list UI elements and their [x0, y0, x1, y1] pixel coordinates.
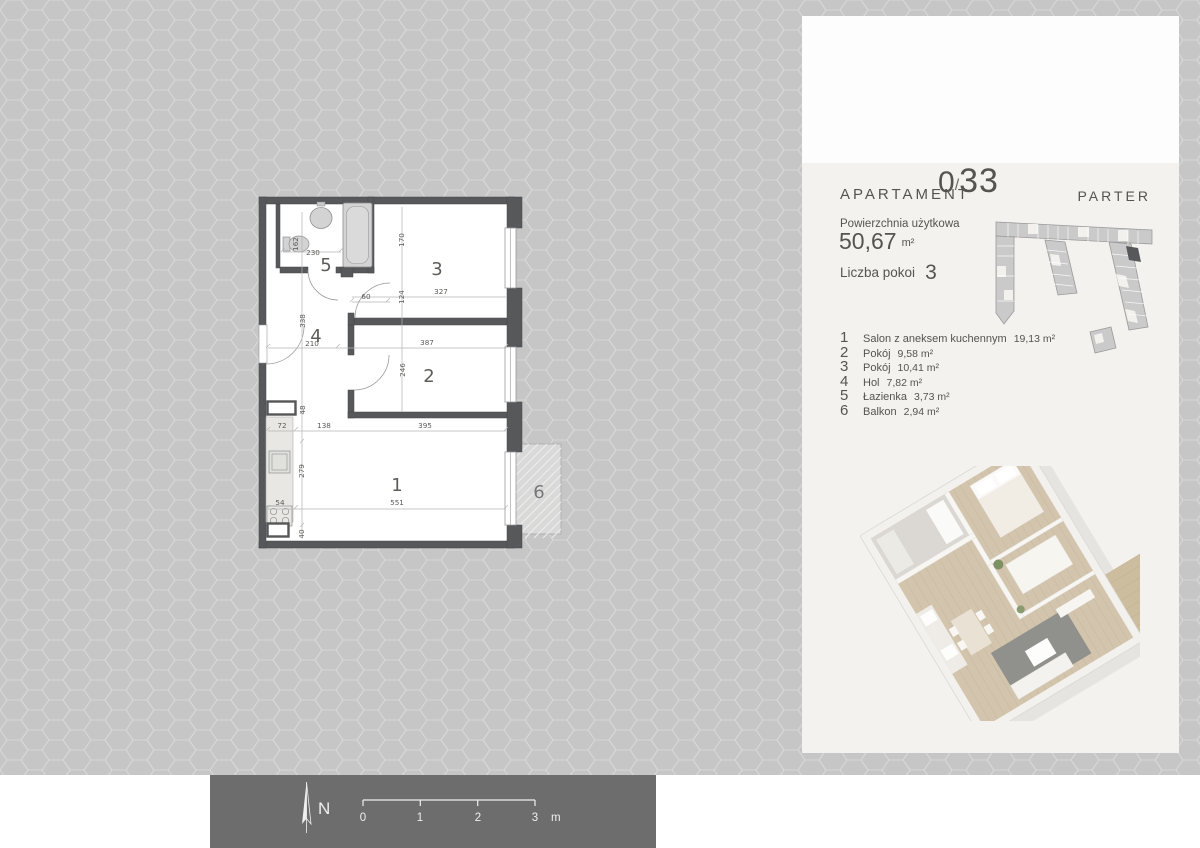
rooms-count: Liczba pokoi3	[840, 259, 937, 283]
legend-name: Pokój	[863, 362, 891, 374]
apartment-number: 0/33	[938, 162, 999, 201]
legend-name: Hol	[863, 377, 880, 389]
apartment-number-main: 33	[959, 162, 999, 200]
scale-labels: 0 1 2 3 m	[360, 812, 561, 824]
panel-top-block	[802, 16, 1179, 163]
north-label: N	[318, 799, 330, 818]
legend-name: Salon z aneksem kuchennym	[863, 333, 1007, 345]
area-number: 50,67	[839, 228, 897, 254]
scale-bar	[363, 800, 535, 806]
apartment-3d-render	[860, 466, 1140, 721]
legend-row: 4 Hol 7,82 m²	[840, 373, 1150, 388]
scale-tick-label: 0	[360, 812, 366, 824]
rooms-count-value: 3	[925, 261, 937, 284]
legend-area: 7,82 m²	[887, 377, 923, 389]
info-panel: APARTAMENT 0/33 PARTER Powierzchnia użyt…	[802, 16, 1179, 753]
area-unit: m²	[902, 237, 915, 249]
usable-area-value: 50,67m²	[839, 228, 914, 255]
legend-name: Balkon	[863, 406, 897, 418]
building-site-minimap	[988, 214, 1168, 362]
legend-area: 9,58 m²	[898, 348, 934, 360]
rooms-count-label: Liczba pokoi	[840, 265, 915, 280]
legend-area: 3,73 m²	[914, 391, 950, 403]
legend-name: Łazienka	[863, 391, 907, 403]
scale-tick-label: 1	[417, 812, 423, 824]
apartment-number-prefix: 0	[938, 166, 955, 199]
scale-tick-label: 2	[475, 812, 481, 824]
legend-area: 10,41 m²	[898, 362, 939, 374]
legend-row: 6 Balkon 2,94 m²	[840, 402, 1150, 417]
scale-tick-label: 3	[532, 812, 538, 824]
legend-area: 2,94 m²	[904, 406, 940, 418]
legend-number: 6	[840, 402, 854, 419]
north-arrow-icon	[302, 782, 311, 833]
footer-svg: N 0 1 2 3 m	[210, 775, 656, 848]
floor-label: PARTER	[1078, 188, 1152, 204]
legend-row: 5 Łazienka 3,73 m²	[840, 387, 1150, 402]
render-rotated-group	[860, 466, 1140, 721]
scale-unit-label: m	[551, 812, 561, 824]
legend-name: Pokój	[863, 348, 891, 360]
footer-bar: N 0 1 2 3 m	[210, 775, 656, 848]
apartment-number-separator: /	[955, 177, 959, 194]
